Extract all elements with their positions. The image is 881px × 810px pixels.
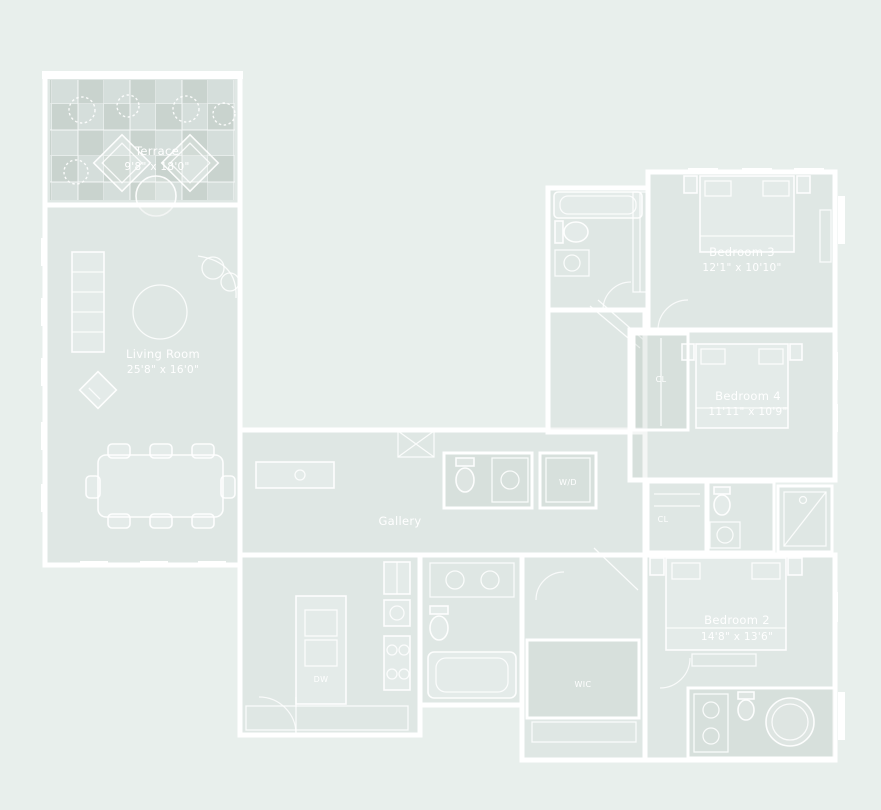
room-label: Terrace — [134, 144, 179, 158]
room-label: Gallery — [378, 514, 421, 528]
closet-icon: CL — [648, 482, 706, 552]
window-marker — [833, 592, 838, 622]
toilet-icon — [555, 221, 588, 243]
window-marker — [41, 422, 46, 450]
washer-dryer-label: W/D — [559, 478, 577, 487]
shower-icon — [778, 486, 832, 552]
room-wic: WIC — [522, 548, 645, 760]
window-marker — [80, 561, 108, 566]
room-dimensions: 9'8" x 18'0" — [124, 161, 189, 173]
terrace-parapet-wall — [42, 71, 243, 79]
window-marker — [41, 358, 46, 386]
balcony-marker — [838, 692, 845, 740]
washer-dryer-closet: W/D — [540, 453, 596, 508]
bookcase-icon — [72, 252, 104, 352]
room-label: Bedroom 2 — [704, 613, 770, 627]
window-marker — [833, 404, 838, 432]
nightstand-icon — [682, 344, 694, 360]
room-gallery: W/D Gallery — [240, 430, 645, 555]
window-marker — [140, 561, 168, 566]
room-dimensions: 12'1" x 10'10" — [702, 262, 781, 274]
bath-closet-row: CL — [648, 482, 832, 552]
nightstand-icon — [684, 176, 697, 193]
room-label: Living Room — [126, 347, 200, 361]
closet-label: CL — [658, 515, 669, 524]
room-dimensions: 11'11" x 10'9" — [708, 406, 787, 418]
toilet-icon — [456, 468, 474, 492]
nightstand-icon — [797, 176, 810, 193]
console-table-icon — [256, 462, 334, 488]
bathroom-2 — [708, 482, 774, 552]
toilet-icon — [430, 606, 448, 640]
room-bathroom-a — [548, 188, 648, 310]
window-marker — [794, 168, 824, 173]
bed-icon — [700, 176, 794, 252]
room-kitchen: DW — [240, 555, 420, 735]
dining-table-icon — [86, 444, 235, 528]
window-marker — [688, 168, 718, 173]
bathtub-icon — [428, 652, 516, 698]
appliance-wall — [384, 562, 410, 690]
nightstand-icon — [788, 558, 802, 575]
round-tub-icon — [766, 698, 814, 746]
nightstand-icon — [790, 344, 802, 360]
room-bathroom-main — [420, 555, 522, 705]
room-terrace: Terrace 9'8" x 18'0" — [42, 71, 243, 216]
room-bedroom-2: Bedroom 2 14'8" x 13'6" — [645, 555, 845, 762]
room-bedroom-4: CL Bedroom 4 11'11" x 10'9" — [630, 330, 838, 480]
nightstand-icon — [650, 558, 664, 575]
wic-label: WIC — [574, 680, 591, 689]
closet-icon: CL — [634, 334, 688, 430]
toilet-icon — [738, 692, 754, 720]
oven-icon — [384, 600, 410, 626]
room-dimensions: 25'8" x 16'0" — [127, 364, 199, 376]
powder-room — [444, 453, 532, 508]
room-living: Living Room 25'8" x 16'0" — [41, 205, 240, 566]
window-marker — [742, 168, 772, 173]
range-icon — [384, 636, 410, 690]
room-label: Bedroom 3 — [709, 245, 775, 259]
room-dimensions: 14'8" x 13'6" — [701, 631, 773, 643]
toilet-icon — [714, 487, 730, 494]
window-marker — [41, 238, 46, 266]
room-label: Bedroom 4 — [715, 389, 781, 403]
kitchen-island: DW — [296, 596, 346, 704]
window-marker — [41, 484, 46, 512]
toilet-icon — [714, 495, 730, 515]
window-marker — [198, 561, 226, 566]
balcony-marker — [838, 196, 845, 244]
window-marker — [41, 298, 46, 326]
bathtub-icon — [554, 192, 642, 218]
window-marker — [833, 352, 838, 380]
dishwasher-label: DW — [314, 675, 329, 684]
toilet-icon — [456, 458, 474, 466]
closet-label: CL — [656, 375, 667, 384]
room-bedroom-3: Bedroom 3 12'1" x 10'10" — [648, 168, 845, 330]
floor-plan-canvas: Terrace 9'8" x 18'0" — [0, 0, 881, 810]
